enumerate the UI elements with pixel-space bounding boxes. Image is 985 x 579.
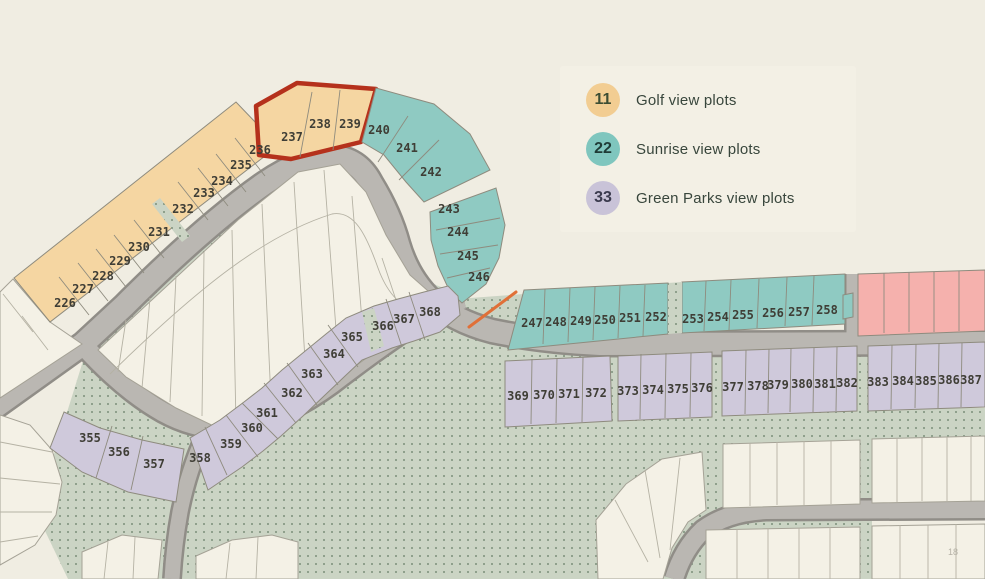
plot-label-256: 256 (762, 306, 784, 320)
plot-label-252: 252 (645, 310, 667, 324)
legend-item-golf: 11 Golf view plots (586, 83, 856, 117)
plot-label-233: 233 (193, 186, 215, 200)
plot-label-250: 250 (594, 313, 616, 327)
plot-label-365: 365 (341, 330, 363, 344)
plot-label-357: 357 (143, 457, 165, 471)
plot-label-227: 227 (72, 282, 94, 296)
plot-label-373: 373 (617, 384, 639, 398)
plot-label-386: 386 (938, 373, 960, 387)
plot-label-248: 248 (545, 315, 567, 329)
plot-label-230: 230 (128, 240, 150, 254)
pink-band (858, 270, 985, 336)
plot-label-371: 371 (558, 387, 580, 401)
plot-label-240: 240 (368, 123, 390, 137)
plot-label-385: 385 (915, 374, 937, 388)
plot-label-245: 245 (457, 249, 479, 263)
plot-label-361: 361 (256, 406, 278, 420)
plot-label-226: 226 (54, 296, 76, 310)
plot-label-356: 356 (108, 445, 130, 459)
plot-label-242: 242 (420, 165, 442, 179)
plot-label-374: 374 (642, 383, 664, 397)
plot-label-231: 231 (148, 225, 170, 239)
plot-label-254: 254 (707, 310, 729, 324)
plot-label-229: 229 (109, 254, 131, 268)
plot-label-246: 246 (468, 270, 490, 284)
white-row-upper-west (723, 440, 860, 508)
plot-label-368: 368 (419, 305, 441, 319)
white-row-upper-east (872, 436, 985, 503)
plot-label-377: 377 (722, 380, 744, 394)
plot-label-367: 367 (393, 312, 415, 326)
plot-label-358: 358 (189, 451, 211, 465)
plot-label-375: 375 (667, 382, 689, 396)
plot-label-369: 369 (507, 389, 529, 403)
legend-item-sunrise: 22 Sunrise view plots (586, 132, 856, 166)
plot-label-381: 381 (814, 377, 836, 391)
plot-label-253: 253 (682, 312, 704, 326)
plot-label-241: 241 (396, 141, 418, 155)
plot-label-382: 382 (836, 376, 858, 390)
plot-label-239: 239 (339, 117, 361, 131)
plot-label-243: 243 (438, 202, 460, 216)
plot-label-244: 244 (447, 225, 469, 239)
plot-label-234: 234 (211, 174, 233, 188)
plot-label-363: 363 (301, 367, 323, 381)
plot-label-236: 236 (249, 143, 271, 157)
plot-label-378: 378 (747, 379, 769, 393)
plot-label-257: 257 (788, 305, 810, 319)
plot-label-235: 235 (230, 158, 252, 172)
legend-label-sunrise: Sunrise view plots (636, 141, 761, 158)
plot-label-251: 251 (619, 311, 641, 325)
plot-label-366: 366 (372, 319, 394, 333)
plot-label-364: 364 (323, 347, 345, 361)
plot-label-249: 249 (570, 314, 592, 328)
plot-label-376: 376 (691, 381, 713, 395)
legend-badge-golf: 11 (586, 83, 620, 117)
plot-label-258: 258 (816, 303, 838, 317)
pink-plots (858, 270, 985, 336)
sunrise-row-gap (668, 282, 682, 334)
legend-badge-parks: 33 (586, 181, 620, 215)
plot-label-359: 359 (220, 437, 242, 451)
plot-label-387: 387 (960, 373, 982, 387)
sunrise-sliver (843, 293, 853, 319)
legend-item-parks: 33 Green Parks view plots (586, 181, 856, 215)
page-number: 18 (948, 547, 958, 557)
white-row-lower-east (872, 524, 985, 579)
legend-label-golf: Golf view plots (636, 92, 737, 109)
plot-label-370: 370 (533, 388, 555, 402)
plot-label-379: 379 (767, 378, 789, 392)
masterplan-page: 2262272282292302312322332342352362372382… (0, 0, 985, 579)
white-row-lower-west (706, 527, 860, 579)
plot-label-232: 232 (172, 202, 194, 216)
plot-label-372: 372 (585, 386, 607, 400)
plot-label-355: 355 (79, 431, 101, 445)
plot-label-383: 383 (867, 375, 889, 389)
plot-label-238: 238 (309, 117, 331, 131)
plot-label-228: 228 (92, 269, 114, 283)
plot-label-255: 255 (732, 308, 754, 322)
plot-label-360: 360 (241, 421, 263, 435)
legend-label-parks: Green Parks view plots (636, 190, 795, 207)
plot-label-237: 237 (281, 130, 303, 144)
legend-panel: 11 Golf view plots 22 Sunrise view plots… (560, 66, 856, 232)
plot-label-380: 380 (791, 377, 813, 391)
plot-label-362: 362 (281, 386, 303, 400)
plot-label-247: 247 (521, 316, 543, 330)
plot-label-384: 384 (892, 374, 914, 388)
legend-badge-sunrise: 22 (586, 132, 620, 166)
